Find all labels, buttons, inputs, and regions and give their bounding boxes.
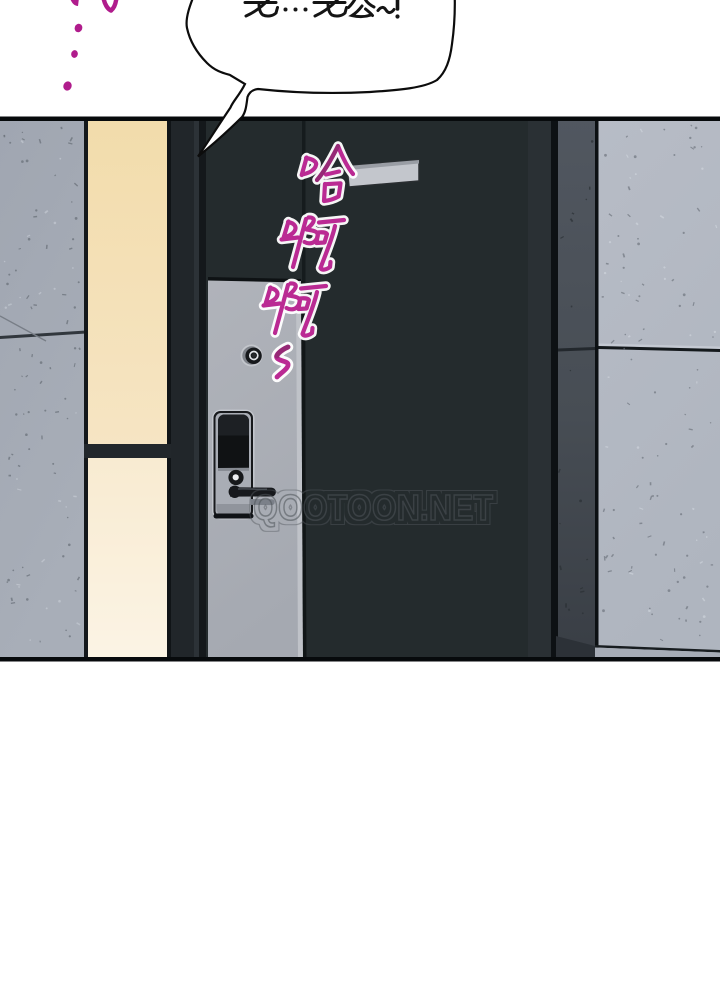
svg-text:QOOTOON.NET: QOOTOON.NET [253,487,493,528]
